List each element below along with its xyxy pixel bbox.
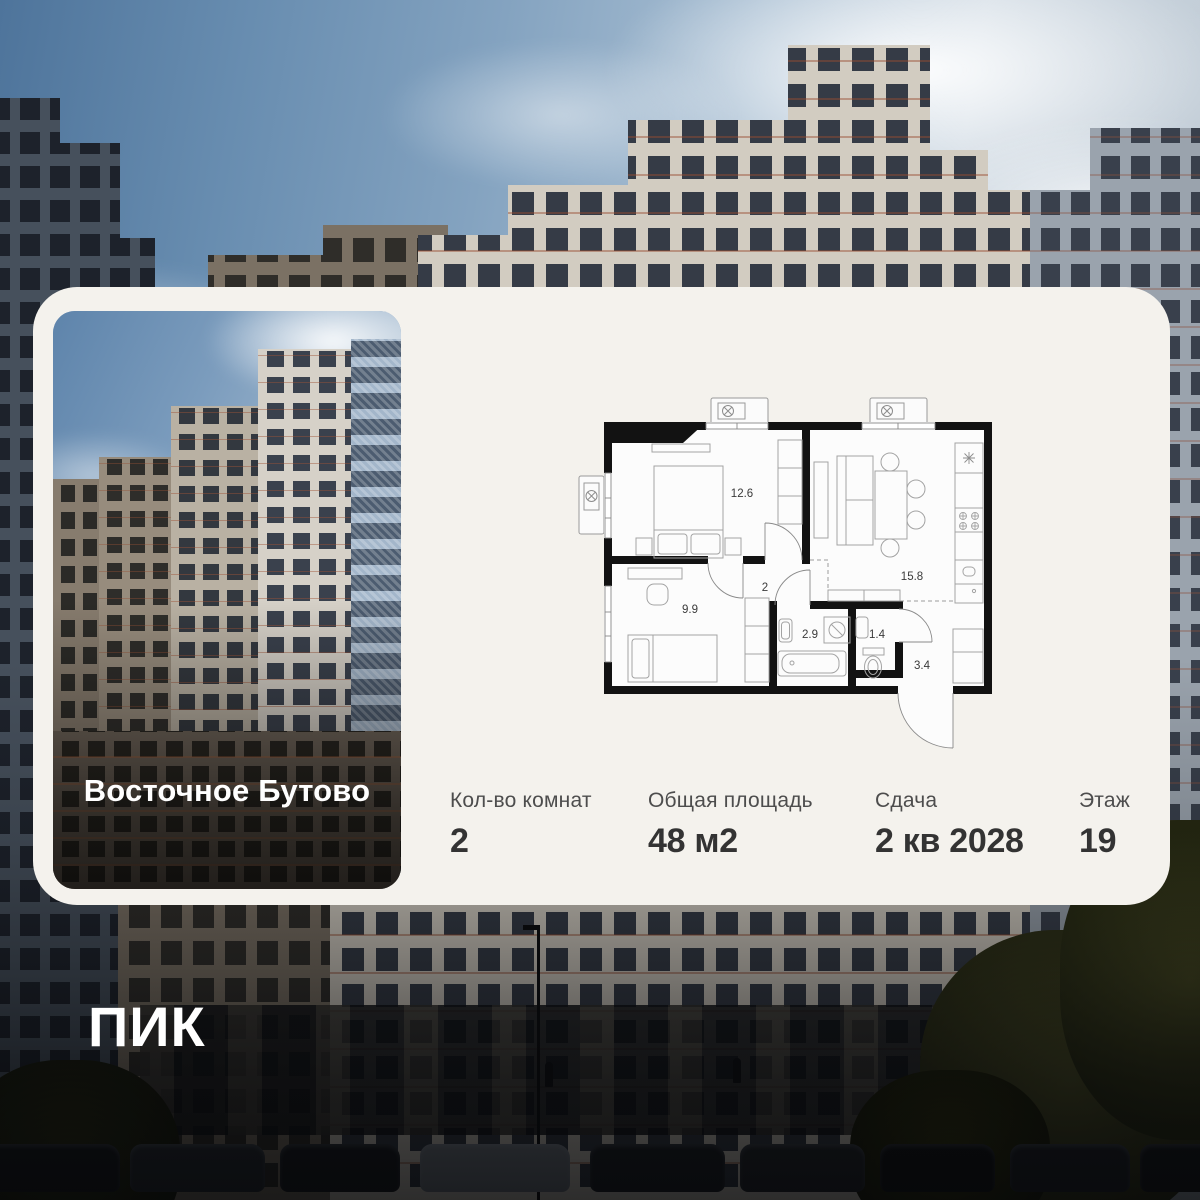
fridge-icon xyxy=(963,452,975,464)
room-area-bedroom2: 9.9 xyxy=(682,604,698,616)
project-name: Восточное Бутово xyxy=(53,773,401,809)
stat-floor: Этаж 19 xyxy=(1079,789,1130,861)
stat-value: 2 xyxy=(450,822,592,861)
stat-value: 48 м2 xyxy=(648,822,813,861)
stat-rooms: Кол-во комнат 2 xyxy=(450,789,592,861)
pik-logo: ПИК xyxy=(88,996,206,1058)
listing-card[interactable]: Восточное Бутово xyxy=(33,287,1170,905)
room-area-hallway: 3.4 xyxy=(914,660,931,672)
stat-value: 19 xyxy=(1079,822,1130,861)
room-area-wc: 1.4 xyxy=(869,629,886,641)
room-area-corridor: 2 xyxy=(762,582,768,594)
entry-swing xyxy=(898,693,953,748)
stat-label: Сдача xyxy=(875,789,1024,813)
stat-area: Общая площадь 48 м2 xyxy=(648,789,813,861)
stat-delivery: Сдача 2 кв 2028 xyxy=(875,789,1024,861)
stat-label: Этаж xyxy=(1079,789,1130,813)
stat-label: Кол-во комнат xyxy=(450,789,592,813)
project-photo: Восточное Бутово xyxy=(53,311,401,889)
room-area-bedroom1: 12.6 xyxy=(731,488,753,500)
floorplan: 12.6 15.8 2 9.9 2.9 1.4 3.4 xyxy=(575,370,1015,795)
room-area-bathroom: 2.9 xyxy=(802,629,818,641)
stat-label: Общая площадь xyxy=(648,789,813,813)
stat-value: 2 кв 2028 xyxy=(875,822,1024,861)
room-area-kitchen: 15.8 xyxy=(901,571,923,583)
